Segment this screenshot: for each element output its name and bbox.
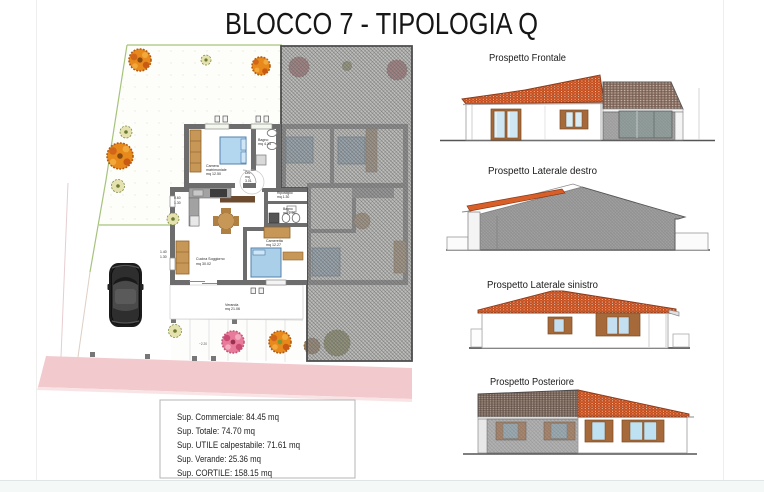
- svg-text:0.60: 0.60: [174, 196, 181, 200]
- svg-text:−2.20: −2.20: [199, 342, 207, 346]
- svg-text:mq 21.06: mq 21.06: [225, 307, 240, 311]
- svg-text:Sup. Commerciale: 84.45 mq: Sup. Commerciale: 84.45 mq: [177, 412, 279, 422]
- svg-text:Prospetto Laterale destro: Prospetto Laterale destro: [488, 166, 597, 177]
- svg-text:mq 2.96: mq 2.96: [283, 211, 295, 215]
- svg-text:mq 12.50: mq 12.50: [206, 172, 221, 176]
- svg-text:mq 30.02: mq 30.02: [196, 262, 211, 266]
- svg-text:Sup. Verande: 25.36 mq: Sup. Verande: 25.36 mq: [177, 454, 261, 464]
- svg-text:Prospetto Posteriore: Prospetto Posteriore: [490, 377, 574, 388]
- svg-text:Sup. CORTILE: 158.15 mq: Sup. CORTILE: 158.15 mq: [177, 468, 272, 478]
- svg-text:1.30: 1.30: [160, 255, 167, 259]
- svg-text:Prospetto Laterale sinistro: Prospetto Laterale sinistro: [487, 280, 598, 291]
- svg-text:mq 12.27: mq 12.27: [266, 243, 281, 247]
- svg-text:1.30: 1.30: [174, 201, 181, 205]
- svg-text:Sup. Totale: 74.70 mq: Sup. Totale: 74.70 mq: [177, 426, 255, 436]
- svg-text:3.01: 3.01: [245, 179, 252, 183]
- svg-text:BLOCCO 7 - TIPOLOGIA Q: BLOCCO 7 - TIPOLOGIA Q: [225, 6, 538, 41]
- svg-text:1.40: 1.40: [160, 250, 167, 254]
- svg-text:mq 1.30: mq 1.30: [277, 195, 289, 199]
- svg-text:Prospetto Frontale: Prospetto Frontale: [489, 53, 566, 64]
- svg-text:Cucina Soggiorno: Cucina Soggiorno: [196, 257, 225, 261]
- svg-text:Sup. UTILE calpestabile: 71.61: Sup. UTILE calpestabile: 71.61 mq: [177, 440, 300, 450]
- svg-text:mq 4.13: mq 4.13: [258, 142, 271, 146]
